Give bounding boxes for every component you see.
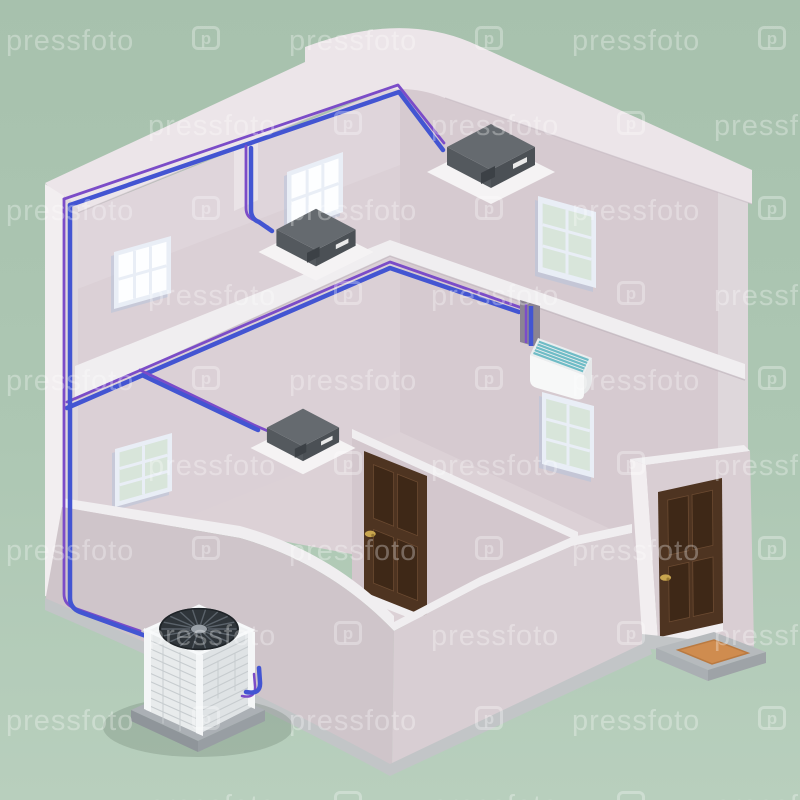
watermark-text: pressfoto xyxy=(148,790,276,800)
watermark-cell: pressfotop xyxy=(289,195,417,228)
watermark-text: pressfoto xyxy=(431,280,559,312)
watermark-cell: pressfotop xyxy=(289,365,417,398)
logo-glyph: p xyxy=(201,540,211,557)
watermark-cell: pressfotop xyxy=(148,110,276,143)
watermark-cell: pressfotop xyxy=(714,280,800,313)
watermark-text: pressfoto xyxy=(6,25,134,57)
pressfoto-logo-icon: p xyxy=(334,621,362,645)
pressfoto-logo-icon: p xyxy=(334,451,362,475)
watermark-text: pressfoto xyxy=(431,620,559,652)
pressfoto-logo-icon: p xyxy=(334,111,362,135)
watermark-text: pressfoto xyxy=(6,705,134,737)
watermark-text: pressfoto xyxy=(431,450,559,482)
pressfoto-logo-icon: p xyxy=(617,621,645,645)
watermark-text: pressfoto xyxy=(572,705,700,737)
stock-illustration: pressfotoppressfotoppressfotoppressfotop… xyxy=(0,0,800,800)
watermark-cell: pressfotop xyxy=(431,450,559,483)
pressfoto-logo-icon: p xyxy=(617,281,645,305)
pressfoto-logo-icon: p xyxy=(475,366,503,390)
logo-glyph: p xyxy=(201,710,211,727)
watermark-cell: pressfotop xyxy=(572,195,700,228)
watermark-cell: pressfotop xyxy=(148,620,276,653)
logo-glyph: p xyxy=(201,30,211,47)
watermark-text: pressfoto xyxy=(714,450,800,482)
pressfoto-logo-icon: p xyxy=(758,366,786,390)
pressfoto-logo-icon: p xyxy=(334,281,362,305)
logo-glyph: p xyxy=(484,30,494,47)
logo-glyph: p xyxy=(767,710,777,727)
logo-glyph: p xyxy=(767,540,777,557)
pressfoto-logo-icon: p xyxy=(334,791,362,800)
logo-glyph: p xyxy=(343,115,353,132)
logo-glyph: p xyxy=(767,200,777,217)
pressfoto-logo-icon: p xyxy=(758,536,786,560)
watermark-text: pressfoto xyxy=(572,195,700,227)
watermark-cell: pressfotop xyxy=(6,195,134,228)
watermark-text: pressfoto xyxy=(572,535,700,567)
watermark-cell: pressfotop xyxy=(6,25,134,58)
pressfoto-logo-icon: p xyxy=(617,451,645,475)
watermark-cell: pressfotop xyxy=(6,365,134,398)
watermark-cell: pressfotop xyxy=(289,25,417,58)
logo-glyph: p xyxy=(484,540,494,557)
logo-glyph: p xyxy=(343,455,353,472)
watermark-cell: pressfotop xyxy=(714,620,800,653)
watermark-text: pressfoto xyxy=(714,620,800,652)
logo-glyph: p xyxy=(626,625,636,642)
watermark-text: pressfoto xyxy=(6,195,134,227)
pressfoto-logo-icon: p xyxy=(758,706,786,730)
watermark-text: pressfoto xyxy=(148,620,276,652)
watermark-cell: pressfotop xyxy=(148,790,276,800)
watermark-text: pressfoto xyxy=(6,365,134,397)
watermark-text: pressfoto xyxy=(572,25,700,57)
pressfoto-logo-icon: p xyxy=(617,791,645,800)
watermark-text: pressfoto xyxy=(289,365,417,397)
watermark-layer: pressfotoppressfotoppressfotoppressfotop… xyxy=(0,0,800,800)
logo-glyph: p xyxy=(626,455,636,472)
watermark-cell: pressfotop xyxy=(572,25,700,58)
logo-glyph: p xyxy=(343,625,353,642)
pressfoto-logo-icon: p xyxy=(192,366,220,390)
pressfoto-logo-icon: p xyxy=(758,196,786,220)
watermark-text: pressfoto xyxy=(289,25,417,57)
logo-glyph: p xyxy=(484,710,494,727)
watermark-text: pressfoto xyxy=(148,110,276,142)
watermark-cell: pressfotop xyxy=(431,790,559,800)
logo-glyph: p xyxy=(484,370,494,387)
pressfoto-logo-icon: p xyxy=(475,196,503,220)
pressfoto-logo-icon: p xyxy=(192,26,220,50)
watermark-text: pressfoto xyxy=(6,535,134,567)
logo-glyph: p xyxy=(484,200,494,217)
logo-glyph: p xyxy=(626,795,636,800)
watermark-cell: pressfotop xyxy=(572,535,700,568)
watermark-cell: pressfotop xyxy=(714,790,800,800)
watermark-cell: pressfotop xyxy=(431,110,559,143)
watermark-cell: pressfotop xyxy=(6,535,134,568)
pressfoto-logo-icon: p xyxy=(475,706,503,730)
watermark-text: pressfoto xyxy=(289,195,417,227)
watermark-cell: pressfotop xyxy=(148,450,276,483)
watermark-text: pressfoto xyxy=(148,450,276,482)
watermark-cell: pressfotop xyxy=(572,705,700,738)
logo-glyph: p xyxy=(343,795,353,800)
watermark-text: pressfoto xyxy=(289,535,417,567)
logo-glyph: p xyxy=(767,370,777,387)
logo-glyph: p xyxy=(626,115,636,132)
logo-glyph: p xyxy=(626,285,636,302)
watermark-text: pressfoto xyxy=(148,280,276,312)
watermark-cell: pressfotop xyxy=(289,705,417,738)
watermark-cell: pressfotop xyxy=(289,535,417,568)
watermark-cell: pressfotop xyxy=(431,620,559,653)
watermark-text: pressfoto xyxy=(572,365,700,397)
watermark-cell: pressfotop xyxy=(6,705,134,738)
watermark-cell: pressfotop xyxy=(714,110,800,143)
watermark-text: pressfoto xyxy=(431,790,559,800)
logo-glyph: p xyxy=(201,370,211,387)
watermark-cell: pressfotop xyxy=(431,280,559,313)
watermark-text: pressfoto xyxy=(431,110,559,142)
watermark-text: pressfoto xyxy=(289,705,417,737)
logo-glyph: p xyxy=(767,30,777,47)
pressfoto-logo-icon: p xyxy=(192,706,220,730)
watermark-cell: pressfotop xyxy=(714,450,800,483)
logo-glyph: p xyxy=(201,200,211,217)
pressfoto-logo-icon: p xyxy=(475,536,503,560)
pressfoto-logo-icon: p xyxy=(617,111,645,135)
pressfoto-logo-icon: p xyxy=(192,196,220,220)
watermark-text: pressfoto xyxy=(714,790,800,800)
watermark-text: pressfoto xyxy=(714,110,800,142)
logo-glyph: p xyxy=(343,285,353,302)
pressfoto-logo-icon: p xyxy=(475,26,503,50)
watermark-text: pressfoto xyxy=(714,280,800,312)
pressfoto-logo-icon: p xyxy=(192,536,220,560)
watermark-cell: pressfotop xyxy=(148,280,276,313)
watermark-cell: pressfotop xyxy=(572,365,700,398)
pressfoto-logo-icon: p xyxy=(758,26,786,50)
